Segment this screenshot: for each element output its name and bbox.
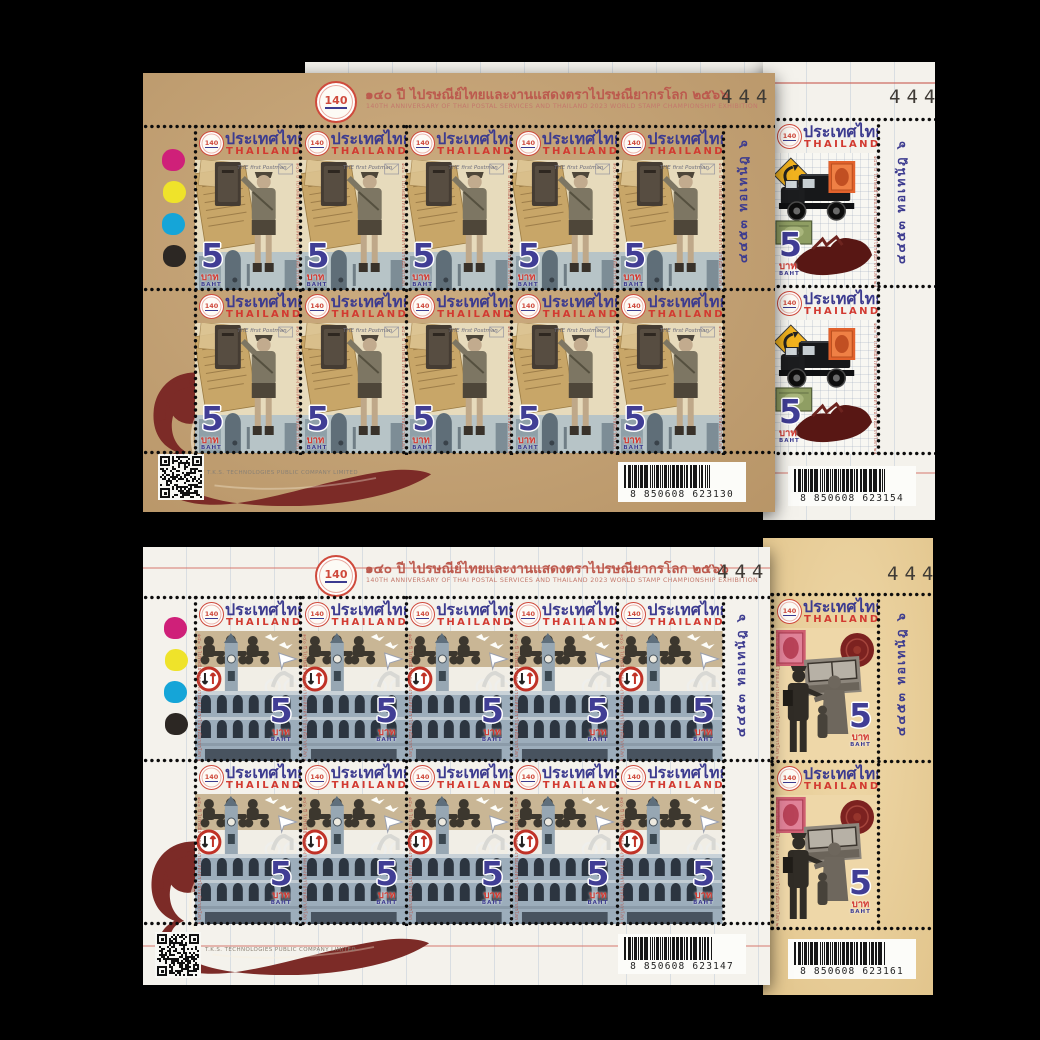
pink-stamp	[776, 797, 806, 833]
anniversary-logo-icon: 140	[315, 81, 357, 123]
stamp-logo-140-icon: 140	[777, 124, 802, 149]
stamp-building: 140 ประเทศไทย THAILAND 5 บาท BAHT ๑๔๐ ปี…	[301, 598, 407, 761]
stamp-truck: 140 ประเทศไทย THAILAND 5 บาท BAHT ๑๔๐ ปี…	[773, 287, 878, 454]
stamp-country-english: THAILAND	[804, 614, 878, 625]
stamp-logo-140-icon: 140	[305, 602, 330, 627]
stamp-country-english: THAILAND	[332, 146, 407, 157]
stamp-building: 140 ประเทศไทย THAILAND 5 บาท BAHT ๑๔๐ ปี…	[617, 761, 723, 924]
stamp-denomination: 5 บาท BAHT	[779, 395, 802, 444]
sheet-title-thai: ๑๔๐ ปี ไปรษณีย์ไทยและงานแสดงตราไปรษณียาก…	[365, 557, 729, 579]
stamp-denomination: 5 บาท BAHT	[586, 857, 609, 906]
stamp-logo-140-icon: 140	[410, 294, 435, 319]
stamp-country-english: THAILAND	[226, 780, 301, 791]
clock-tower	[542, 806, 555, 858]
stamp-denomination: 5 บาท BAHT	[270, 694, 293, 743]
barcode-digits: 8 850608 623161	[794, 966, 910, 977]
stamp-country-english: THAILAND	[226, 309, 301, 320]
stamp-country-english: THAILAND	[226, 146, 301, 157]
stamp-country-english: THAILAND	[437, 146, 512, 157]
stamp-logo-140-icon: 140	[410, 765, 435, 790]
stamp-country-english: THAILAND	[648, 146, 723, 157]
stamp-country-english: THAILAND	[332, 780, 407, 791]
stamp-denomination: 5 บาท BAHT	[623, 239, 646, 288]
barcode: 8 850608 623130	[618, 462, 746, 502]
stamp-denomination: 5 บาท BAHT	[481, 857, 504, 906]
stamp-country-english: THAILAND	[332, 309, 407, 320]
stamp-denomination: 5 บาท BAHT	[307, 402, 330, 451]
stamp-denomination: 5 บาท BAHT	[412, 239, 435, 288]
clock-tower	[647, 643, 660, 695]
stamp-logo-140-icon: 140	[621, 602, 646, 627]
barcode: 8 850608 623154	[788, 466, 916, 506]
stamp-logo-140-icon: 140	[199, 131, 224, 156]
clock-tower	[330, 806, 343, 858]
stamp-delivery: 140 ประเทศไทย THAILAND 5 บาท BAHT ๑๔๐ ปี…	[773, 762, 878, 929]
stamp-building: 140 ประเทศไทย THAILAND 5 บาท BAHT ๑๔๐ ปี…	[301, 761, 407, 924]
stamp-postman: 140 ประเทศไทย THAILAND THE first Postman…	[301, 290, 407, 453]
registration-dot-black	[163, 245, 186, 267]
stamp-logo-140-icon: 140	[621, 765, 646, 790]
stamp-postman: 140 ประเทศไทย THAILAND THE first Postman…	[301, 127, 407, 290]
registration-dot-cyan	[164, 681, 187, 703]
stamp-denomination: 5 บาท BAHT	[375, 857, 398, 906]
stamp-denomination: 5 บาท BAHT	[201, 402, 224, 451]
stamp-denomination: 5 บาท BAHT	[481, 694, 504, 743]
stamp-country-english: THAILAND	[804, 781, 878, 792]
stamp-country-english: THAILAND	[804, 306, 878, 317]
registration-dot-cyan	[162, 213, 185, 235]
stamp-building: 140 ประเทศไทย THAILAND 5 บาท BAHT ๑๔๐ ปี…	[195, 761, 301, 924]
stamp-denomination: 5 บาท BAHT	[518, 239, 541, 288]
stamp-denomination: 5 บาท BAHT	[375, 694, 398, 743]
clock-tower	[436, 806, 449, 858]
registration-dot-magenta	[164, 617, 187, 639]
stamp-country-english: THAILAND	[804, 139, 878, 150]
stamp-postman: 140 ประเทศไทย THAILAND THE first Postman…	[617, 127, 723, 290]
stamp-logo-140-icon: 140	[199, 602, 224, 627]
stamp-logo-140-icon: 140	[199, 765, 224, 790]
sheet-title-english: 140TH ANNIVERSARY OF THAI POSTAL SERVICE…	[366, 103, 758, 110]
stamp-postman: 140 ประเทศไทย THAILAND THE first Postman…	[406, 290, 512, 453]
barcode-digits: 8 850608 623130	[624, 489, 740, 500]
registration-dot-yellow	[165, 649, 188, 671]
barcode-digits: 8 850608 623147	[624, 961, 740, 972]
sheet-number: 444	[721, 86, 773, 108]
anniversary-logo-icon: 140	[315, 555, 357, 597]
registration-dot-black	[165, 713, 188, 735]
stamp-country-english: THAILAND	[543, 617, 618, 628]
stamp-caption: THE first Postman	[449, 165, 498, 171]
stamp-building: 140 ประเทศไทย THAILAND 5 บาท BAHT ๑๔๐ ปี…	[195, 598, 301, 761]
orange-stamp	[828, 161, 855, 193]
stamp-denomination: 5 บาท BAHT	[849, 866, 872, 915]
stamp-delivery: 140 ประเทศไทย THAILAND 5 บาท BAHT ๑๔๐ ปี…	[773, 595, 878, 762]
stamp-postman: 140 ประเทศไทย THAILAND THE first Postman…	[195, 127, 301, 290]
stamp-caption: THE first Postman	[237, 328, 286, 334]
printer-imprint: T.K.S. TECHNOLOGIES PUBLIC COMPANY LIMIT…	[207, 470, 358, 476]
stamp-logo-140-icon: 140	[621, 131, 646, 156]
sheet-top-front: 140 ๑๔๐ ปี ไปรษณีย์ไทยและงานแสดงตราไปรษณ…	[143, 73, 775, 512]
stamp-caption: THE first Postman	[554, 165, 603, 171]
stamp-building: 140 ประเทศไทย THAILAND 5 บาท BAHT ๑๔๐ ปี…	[617, 598, 723, 761]
qr-code	[158, 454, 204, 500]
qr-code	[155, 932, 201, 978]
stamp-building: 140 ประเทศไทย THAILAND 5 บาท BAHT ๑๔๐ ปี…	[406, 761, 512, 924]
registration-dot-yellow	[163, 181, 186, 203]
stamp-country-english: THAILAND	[648, 309, 723, 320]
stamp-denomination: 5 บาท BAHT	[692, 857, 715, 906]
stamp-caption: THE first Postman	[237, 165, 286, 171]
stamp-logo-140-icon: 140	[305, 131, 330, 156]
barcode-digits: 8 850608 623154	[794, 493, 910, 504]
registration-dot-magenta	[162, 149, 185, 171]
stamp-denomination: 5 บาท BAHT	[779, 228, 802, 277]
stamp-caption: THE first Postman	[449, 328, 498, 334]
stamp-building: 140 ประเทศไทย THAILAND 5 บาท BAHT ๑๔๐ ปี…	[406, 598, 512, 761]
stamp-caption: THE first Postman	[660, 165, 709, 171]
stamp-denomination: 5 บาท BAHT	[518, 402, 541, 451]
stamp-logo-140-icon: 140	[516, 765, 541, 790]
clock-tower	[647, 806, 660, 858]
sheet-number: 444	[887, 563, 939, 585]
stamp-denomination: 5 บาท BAHT	[586, 694, 609, 743]
sheet-bottom-back: 444 ๔๔๕๓ ทอเทนัฎ ๖	[763, 538, 933, 995]
pink-stamp	[776, 630, 806, 666]
stamp-logo-140-icon: 140	[621, 294, 646, 319]
sheet-title-thai: ๑๔๐ ปี ไปรษณีย์ไทยและงานแสดงตราไปรษณียาก…	[365, 83, 729, 105]
stamp-truck: 140 ประเทศไทย THAILAND 5 บาท BAHT ๑๔๐ ปี…	[773, 120, 878, 287]
stamp-sheets-photo: 444 ๔๔๕๓ ทอเทนัฎ ๖	[0, 0, 1040, 1040]
stamp-country-english: THAILAND	[437, 617, 512, 628]
stamp-country-english: THAILAND	[437, 309, 512, 320]
stamp-country-english: THAILAND	[437, 780, 512, 791]
stamp-denomination: 5 บาท BAHT	[412, 402, 435, 451]
clock-tower	[542, 643, 555, 695]
sheet-top-back: 444 ๔๔๕๓ ทอเทนัฎ ๖	[763, 62, 935, 520]
sheet-title-english: 140TH ANNIVERSARY OF THAI POSTAL SERVICE…	[366, 577, 758, 584]
clock-tower	[225, 806, 238, 858]
printer-imprint: T.K.S. TECHNOLOGIES PUBLIC COMPANY LIMIT…	[205, 947, 356, 953]
stamp-denomination: 5 บาท BAHT	[692, 694, 715, 743]
stamp-postman: 140 ประเทศไทย THAILAND THE first Postman…	[406, 127, 512, 290]
stamp-country-english: THAILAND	[543, 309, 618, 320]
stamp-postman: 140 ประเทศไทย THAILAND THE first Postman…	[512, 290, 618, 453]
stamp-denomination: 5 บาท BAHT	[270, 857, 293, 906]
clock-tower	[436, 643, 449, 695]
plate-margin-text: ๔๔๕๓ ทอเทนัฎ ๖	[891, 154, 911, 264]
stamp-postman: 140 ประเทศไทย THAILAND THE first Postman…	[512, 127, 618, 290]
stamp-country-english: THAILAND	[543, 780, 618, 791]
stamp-denomination: 5 บาท BAHT	[307, 239, 330, 288]
stamp-postman: 140 ประเทศไทย THAILAND THE first Postman…	[617, 290, 723, 453]
stamp-logo-140-icon: 140	[516, 602, 541, 627]
stamp-logo-140-icon: 140	[777, 766, 802, 791]
stamp-country-english: THAILAND	[543, 146, 618, 157]
sheet-bottom-front: 140 ๑๔๐ ปี ไปรษณีย์ไทยและงานแสดงตราไปรษณ…	[143, 547, 770, 985]
stamp-logo-140-icon: 140	[777, 599, 802, 624]
sheet-number: 444	[889, 86, 941, 108]
clock-tower	[330, 643, 343, 695]
stamp-logo-140-icon: 140	[305, 765, 330, 790]
stamp-logo-140-icon: 140	[410, 131, 435, 156]
sheet-number: 444	[717, 561, 769, 583]
stamp-country-english: THAILAND	[648, 780, 723, 791]
stamp-country-english: THAILAND	[648, 617, 723, 628]
stamp-logo-140-icon: 140	[305, 294, 330, 319]
stamp-logo-140-icon: 140	[410, 602, 435, 627]
stamp-postman: 140 ประเทศไทย THAILAND THE first Postman…	[195, 290, 301, 453]
barcode: 8 850608 623161	[788, 939, 916, 979]
stamp-caption: THE first Postman	[554, 328, 603, 334]
stamp-caption: THE first Postman	[343, 165, 392, 171]
clock-tower	[225, 643, 238, 695]
plate-margin-text: ๔๔๕๓ ทอเทนัฎ ๖	[891, 626, 911, 736]
stamp-country-english: THAILAND	[226, 617, 301, 628]
plate-margin-text: ๔๔๕๓ ทอเทนัฎ ๖	[731, 627, 751, 737]
stamp-logo-140-icon: 140	[777, 291, 802, 316]
stamp-denomination: 5 บาท BAHT	[201, 239, 224, 288]
stamp-building: 140 ประเทศไทย THAILAND 5 บาท BAHT ๑๔๐ ปี…	[512, 598, 618, 761]
orange-stamp	[828, 328, 855, 360]
stamp-caption: THE first Postman	[343, 328, 392, 334]
barcode: 8 850608 623147	[618, 934, 746, 974]
plate-margin-text: ๔๔๕๓ ทอเทนัฎ ๖	[733, 153, 753, 263]
stamp-logo-140-icon: 140	[516, 294, 541, 319]
stamp-logo-140-icon: 140	[516, 131, 541, 156]
stamp-denomination: 5 บาท BAHT	[849, 699, 872, 748]
stamp-denomination: 5 บาท BAHT	[623, 402, 646, 451]
stamp-country-english: THAILAND	[332, 617, 407, 628]
stamp-logo-140-icon: 140	[199, 294, 224, 319]
stamp-caption: THE first Postman	[660, 328, 709, 334]
stamp-building: 140 ประเทศไทย THAILAND 5 บาท BAHT ๑๔๐ ปี…	[512, 761, 618, 924]
